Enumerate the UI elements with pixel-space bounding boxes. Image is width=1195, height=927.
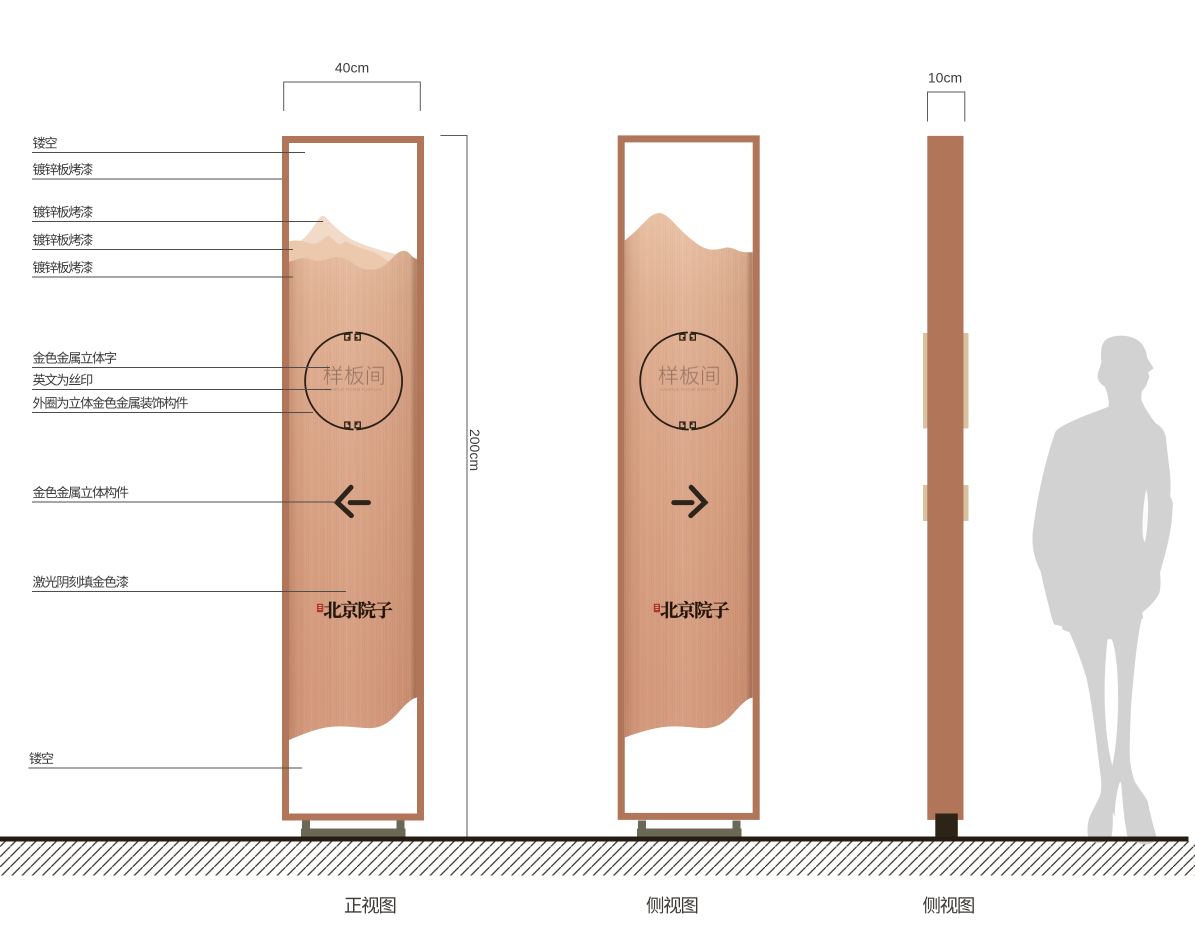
svg-text:10cm: 10cm	[928, 70, 962, 86]
svg-text:SAMPLE ROOM DISPLAY: SAMPLE ROOM DISPLAY	[325, 387, 383, 392]
svg-text:200cm: 200cm	[467, 429, 483, 471]
svg-text:40cm: 40cm	[335, 60, 369, 76]
svg-text:SAMPLE ROOM DISPLAY: SAMPLE ROOM DISPLAY	[660, 387, 718, 392]
